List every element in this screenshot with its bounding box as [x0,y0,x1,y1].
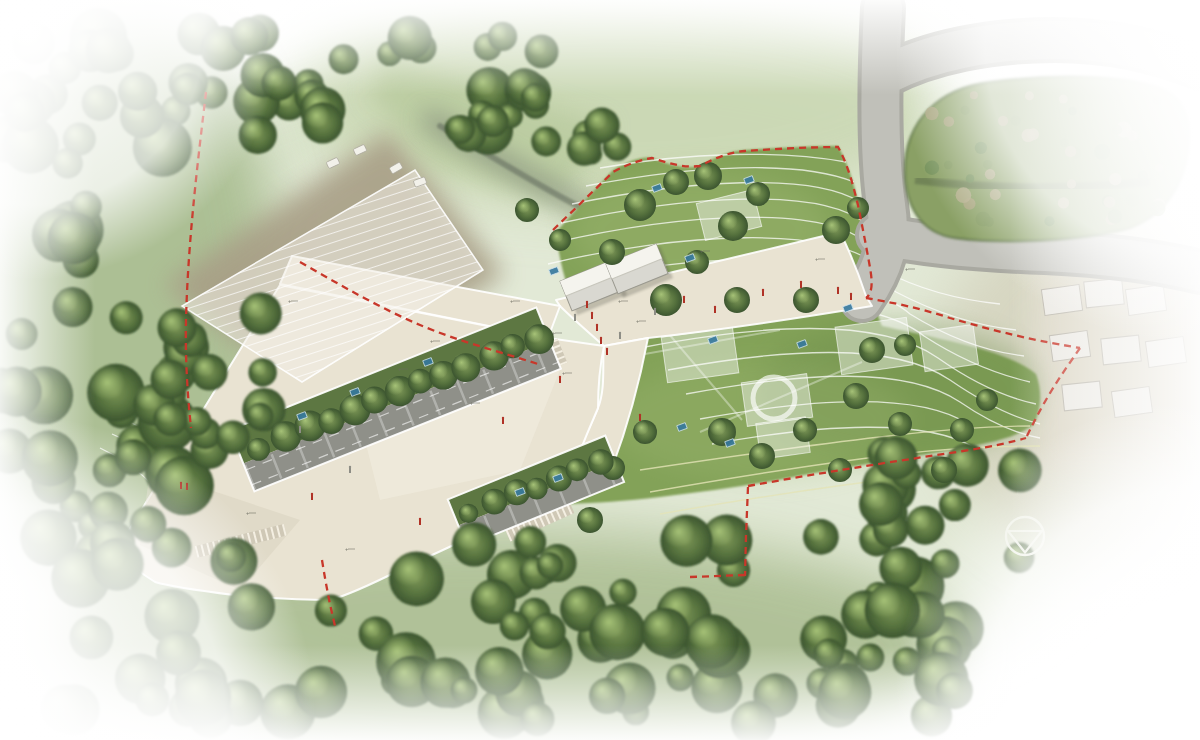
elevation-label: + [470,400,474,406]
existing-house [1041,284,1082,315]
figure-body [180,484,182,489]
tree-highlight [54,148,73,167]
tree-highlight [83,85,105,107]
tree-highlight [71,191,91,211]
figure-body [619,334,621,339]
tree-highlight [586,108,608,130]
tree-highlight [64,123,84,143]
allotment-plot [956,187,972,203]
tree-highlight [50,52,70,72]
tree-highlight [733,701,761,729]
elevation-label: + [246,510,250,516]
tree-highlight [232,18,256,42]
tree-highlight [250,359,268,377]
tree-highlight [894,648,912,666]
tree-highlight [341,395,360,414]
tree-highlight [202,26,230,54]
existing-house [1125,284,1166,315]
allotment-plot [983,160,992,169]
figure-body [586,303,588,308]
figure-head [619,332,621,334]
tree-highlight [1000,449,1027,476]
allotment-plot [1067,179,1076,188]
elevation-label: + [905,266,909,272]
figure-head [349,466,351,468]
figure-body [349,468,351,473]
figure-head [762,289,764,291]
tree-highlight [625,189,645,209]
tree-highlight [600,239,616,255]
figure-head [502,417,504,419]
tree-highlight [460,504,472,516]
tree-highlight [907,506,931,530]
allotment-plot [925,161,939,175]
tree-highlight [297,667,329,699]
tree-highlight [409,369,424,384]
figure-body [654,310,656,315]
tree-highlight [489,551,520,582]
allotment-plot [1138,171,1148,181]
allotment-plot [944,161,952,169]
allotment-plot [1068,107,1077,116]
figure-head [186,483,188,485]
allotment-plot [1104,196,1116,208]
tree-highlight [71,616,98,643]
tree-highlight [860,337,876,353]
existing-house [1145,336,1186,367]
allotment-plot [966,174,975,183]
tree-highlight [152,360,176,384]
allotment-plot [1153,96,1162,105]
tree-highlight [240,116,264,140]
tree-highlight [452,677,469,694]
tree-highlight [610,579,627,596]
tree-highlight [977,389,991,403]
tree-highlight [662,515,694,547]
tree-highlight [248,438,262,452]
figure-body [574,316,576,321]
tree-highlight [844,383,860,399]
tree-highlight [538,553,554,569]
figure-head [586,301,588,303]
tree-highlight [550,229,564,243]
allotment-plot [1112,125,1122,135]
tree-highlight [668,664,685,681]
elevation-label: + [815,256,819,262]
tree-highlight [750,443,766,459]
tree-highlight [147,589,181,623]
figure-head [714,306,716,308]
figure-body [762,291,764,296]
elevation-label: + [562,370,566,376]
tree-highlight [591,604,626,639]
tree-highlight [867,583,902,618]
tree-highlight [54,550,91,587]
figure-body [639,416,641,421]
tree-highlight [454,523,481,550]
tree-highlight [89,365,125,401]
tree-highlight [522,703,543,724]
allotment-plot [1025,91,1034,100]
figure-head [559,376,561,378]
tree-highlight [50,213,83,246]
tree-highlight [651,284,671,304]
tree-highlight [43,685,73,715]
tree-highlight [262,685,296,719]
tree-highlight [87,28,115,56]
tree-highlight [116,440,139,463]
tree-highlight [527,478,541,492]
allotment-plot [1109,173,1121,185]
allotment-plot [925,107,938,120]
tree-highlight [120,72,144,96]
tree-highlight [526,325,544,343]
tree-highlight [951,418,966,433]
tree-highlight [391,552,425,586]
figure-head [311,493,313,495]
tree-highlight [938,673,961,696]
tree-highlight [157,457,194,494]
allotment-plot [1065,146,1076,157]
tree-highlight [158,631,186,659]
tree-highlight [719,211,738,230]
tree-highlight [531,614,554,637]
figure-head [800,281,802,283]
site-plan-canvas: ++++++++++++++ [0,0,1200,740]
tree-highlight [388,656,420,688]
allotment-plot [1011,116,1021,126]
tree-highlight [481,342,499,360]
allotment-plot [1155,164,1163,172]
figure-body [600,339,602,344]
tree-highlight [823,216,840,233]
tree-highlight [562,587,591,616]
tree-highlight [516,198,531,213]
figure-head [419,518,421,520]
allotment-plot [961,106,970,115]
tree-highlight [709,418,726,435]
elevation-label: + [510,298,514,304]
tree-highlight [848,197,862,211]
tree-highlight [590,678,613,701]
tree-highlight [248,403,265,420]
tree-highlight [22,510,57,545]
tree-highlight [230,584,259,613]
tree-highlight [155,402,176,423]
tree-highlight [857,644,874,661]
tree-highlight [578,507,594,523]
tree-highlight [634,420,649,435]
site-plan-rendering: ++++++++++++++ [0,0,1200,740]
road-network [862,8,1200,300]
tree-highlight [473,580,501,608]
figure-body [559,378,561,383]
tree-highlight [747,182,762,197]
road-approach [862,8,888,300]
tree-highlight [725,287,741,303]
figure-body [683,298,685,303]
tree-highlight [7,318,27,338]
tree-highlight [159,309,183,333]
tree-highlight [14,23,40,49]
tree-highlight [117,654,148,685]
figure-body [837,289,839,294]
tree-highlight [389,17,416,44]
figure-head [639,414,641,416]
allotment-plot [1060,138,1068,146]
tree-highlight [468,68,497,97]
tree-highlight [316,595,336,615]
figure-body [714,308,716,313]
tree-highlight [940,490,960,510]
tree-highlight [526,35,547,56]
allotment-plot [985,169,995,179]
tree-highlight [111,302,131,322]
ghost-structure [919,324,978,371]
tree-highlight [477,648,507,678]
figure-head [591,312,593,314]
tree-highlight [137,683,158,704]
tree-highlight [217,421,238,442]
tree-highlight [516,526,536,546]
allotment-plot [1094,144,1110,160]
tree-highlight [54,288,79,313]
elevation-label: + [398,366,402,372]
tree-highlight [861,483,888,510]
tree-highlight [489,22,507,40]
tree-highlight [815,639,834,658]
tree-highlight [932,457,948,473]
elevation-label: + [288,298,292,304]
tree-highlight [447,115,465,133]
tree-highlight [687,615,721,649]
existing-house [1084,278,1125,308]
tree-highlight [589,450,605,466]
tree-highlight [889,412,904,427]
figure-head [606,348,608,350]
tree-highlight [93,539,126,572]
tree-highlight [567,459,581,473]
tree-highlight [643,608,673,638]
tree-highlight [478,106,498,126]
tree-highlight [362,387,379,404]
tree-highlight [430,361,448,379]
figure-head [180,482,182,484]
tree-highlight [794,287,810,303]
tree-highlight [241,293,267,319]
tree-highlight [177,670,212,705]
allotment-plot [998,116,1008,126]
figure-body [502,419,504,424]
figure-body [186,485,188,490]
figure-head [574,314,576,316]
tree-highlight [272,422,291,441]
allotment-plot [1044,216,1054,226]
tree-highlight [501,612,519,630]
figure-head [600,337,602,339]
tree-highlight [193,355,216,378]
tree-highlight [876,437,903,464]
tree-highlight [794,418,809,433]
figure-head [596,324,598,326]
figure-body [299,428,301,433]
tree-highlight [263,66,285,88]
tree-highlight [217,542,236,561]
tree-highlight [502,334,517,349]
allotment-plot [970,91,978,99]
tree-highlight [522,83,540,101]
tree-highlight [24,431,59,466]
figure-body [591,314,593,319]
tree-highlight [6,92,31,117]
allotment-island [905,77,1189,242]
figure-head [683,296,685,298]
tree-highlight [932,550,950,568]
allotment-plot [1127,130,1138,141]
tree-highlight [482,489,498,505]
tree-highlight [90,492,114,516]
tree-highlight [532,127,550,145]
tree-highlight [422,658,453,689]
elevation-label: + [430,338,434,344]
allotment-plot [944,116,955,127]
tree-highlight [664,169,680,185]
existing-house [1062,381,1103,411]
tree-highlight [895,334,909,348]
tree-highlight [94,454,115,475]
figure-head [850,293,852,295]
tree-highlight [360,617,381,638]
figure-body [850,295,852,300]
figure-body [419,520,421,525]
figure-head [299,426,301,428]
elevation-label: + [618,298,622,304]
allotment-plot [1027,128,1039,140]
elevation-label: + [552,330,556,336]
tree-highlight [319,409,335,425]
tree-highlight [568,132,589,153]
figure-body [596,326,598,331]
allotment-plot [1058,197,1069,208]
figure-body [606,350,608,355]
tree-highlight [330,45,349,64]
tree-highlight [820,667,853,700]
allotment-plot [990,189,1001,200]
tree-highlight [805,520,827,542]
tree-highlight [695,162,712,179]
figure-body [311,495,313,500]
figure-body [800,283,802,288]
allotment-plot [1108,209,1122,223]
figure-head [654,308,656,310]
allotment-plot [975,142,987,154]
tree-highlight [386,376,405,395]
tree-highlight [453,354,471,372]
elevation-label: + [345,546,349,552]
elevation-label: + [700,248,704,254]
allotment-plot [1126,193,1140,207]
tree-highlight [755,674,783,702]
elevation-label: + [636,318,640,324]
tree-highlight [304,103,330,129]
allotment-plot [1150,201,1166,217]
allotment-plot [984,217,994,227]
tree-highlight [131,507,154,530]
figure-head [837,287,839,289]
tree-highlight [173,73,193,93]
existing-house [1101,335,1142,365]
existing-house [1111,386,1152,417]
allotment-plot [1059,95,1068,104]
tree-highlight [179,13,206,40]
